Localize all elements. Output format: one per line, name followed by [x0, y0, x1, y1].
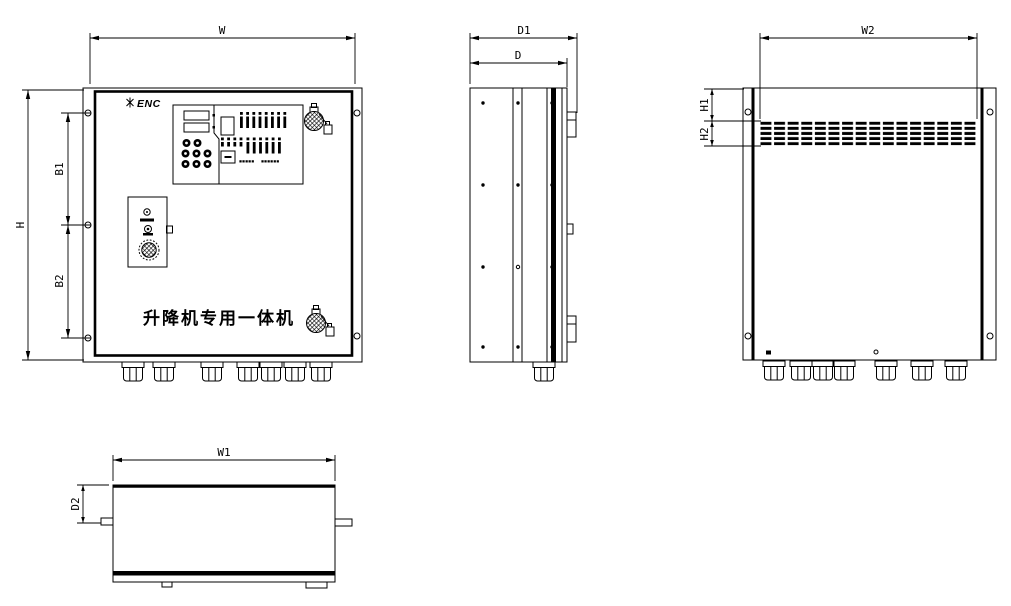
bottom-body-outline	[113, 485, 335, 582]
side-tab	[335, 519, 352, 526]
cable-gland	[284, 362, 306, 381]
cable-gland	[237, 362, 259, 381]
panel-fine-print-left: ▪▪▪▪▪	[239, 160, 254, 165]
seven-segment-display	[184, 123, 209, 132]
mounting-hole	[354, 333, 360, 339]
bottom-tab	[162, 582, 172, 587]
cable-gland	[310, 362, 332, 381]
front-view: ENC	[83, 88, 362, 381]
dim-label-B1: B1	[53, 162, 66, 175]
keypad-button	[182, 160, 190, 168]
front-panel-edge	[551, 88, 556, 362]
cable-gland	[875, 361, 897, 380]
cable-gland	[122, 362, 144, 381]
mounting-hole	[987, 109, 993, 115]
round-connector-icon	[139, 240, 159, 260]
dim-label-W2: W2	[861, 24, 874, 37]
dim-D: D	[470, 49, 567, 87]
keypad-button	[182, 150, 190, 158]
bottom-view	[101, 485, 352, 588]
dim-label-H1: H1	[698, 98, 711, 111]
front-cable-glands	[122, 362, 332, 381]
cable-gland	[260, 362, 282, 381]
seal-lock-icon	[305, 104, 333, 135]
logo-text: ENC	[137, 98, 161, 110]
keypad-button	[194, 139, 202, 147]
keypad-button	[183, 139, 191, 147]
panel-window	[221, 117, 234, 135]
dim-W: W	[90, 24, 355, 84]
keypad-button	[204, 150, 212, 158]
dim-W1: W1	[113, 446, 335, 481]
logo-mark-icon	[127, 98, 134, 108]
dim-D1: D1	[470, 24, 577, 113]
rear-cable-glands	[763, 361, 967, 380]
product-title: 升降机专用一体机	[143, 308, 295, 328]
cable-gland	[153, 362, 175, 381]
dim-B1: B1	[53, 113, 91, 225]
cable-gland	[945, 361, 967, 380]
bottom-tab	[306, 582, 327, 588]
dim-W2: W2	[760, 24, 977, 119]
cable-gland	[911, 361, 933, 380]
dim-label-D2: D2	[69, 497, 82, 510]
access-door	[128, 197, 173, 267]
drain-mark	[766, 351, 771, 355]
cable-gland	[763, 361, 785, 380]
drawing-canvas: ENC	[0, 0, 1011, 606]
panel-fine-print-right: ▪▪▪▪▪▪	[261, 160, 279, 165]
cable-gland	[812, 361, 834, 380]
terminal-row-top	[240, 112, 286, 128]
dim-label-B2: B2	[53, 274, 66, 287]
dim-label-W: W	[219, 24, 226, 37]
dim-B2: B2	[53, 225, 91, 338]
dim-label-D: D	[515, 49, 522, 62]
mounting-hole	[745, 109, 751, 115]
dim-label-H2: H2	[698, 127, 711, 140]
side-hooks	[567, 112, 576, 342]
keypad-panel: ▪▪▪▪▪ ▪▪▪▪▪▪	[173, 105, 303, 184]
cable-gland	[533, 362, 555, 381]
technical-drawing: ENC	[0, 0, 1011, 606]
side-screws	[481, 101, 553, 348]
dim-D2: D2	[69, 485, 109, 523]
rear-view	[743, 88, 996, 380]
side-view	[470, 88, 576, 381]
keypad-button	[204, 160, 212, 168]
drain-hole	[874, 350, 878, 354]
front-face-edge	[113, 571, 335, 576]
cable-gland	[790, 361, 812, 380]
cable-gland	[833, 361, 855, 380]
mounting-hole	[354, 110, 360, 116]
heatsink-vent-grille	[760, 121, 977, 147]
dim-label-W1: W1	[217, 446, 230, 459]
mounting-hole	[745, 333, 751, 339]
brand-logo: ENC	[127, 98, 161, 111]
mounting-hole	[987, 333, 993, 339]
dim-label-D1: D1	[517, 24, 530, 37]
keypad-button	[193, 150, 201, 158]
seven-segment-display	[184, 111, 209, 120]
dim-label-H: H	[14, 222, 27, 229]
cable-gland	[201, 362, 223, 381]
side-tab	[101, 518, 113, 525]
keypad-button	[193, 160, 201, 168]
seal-lock-icon	[307, 306, 335, 337]
